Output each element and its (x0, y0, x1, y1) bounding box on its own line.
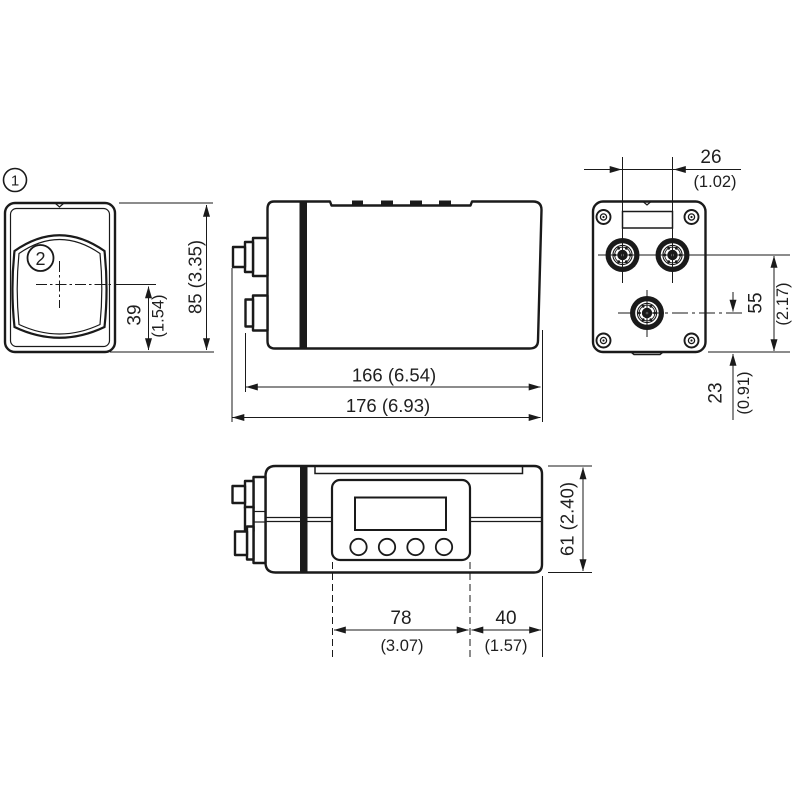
function-button (436, 539, 452, 555)
dimensional-drawing-page: 1 2 85 (3.35) 39 (1.54) (0, 0, 800, 800)
display-width-in-label: (3.07) (380, 637, 423, 655)
rear-view (593, 157, 790, 355)
m12-connector-side-lower-icon (246, 296, 268, 331)
side-view (233, 201, 542, 349)
lower-connector-height-mm-label: 23 (706, 382, 727, 403)
rear-section-in-label: (1.57) (484, 637, 527, 655)
depth-label: 61 (2.40) (557, 482, 578, 556)
front-bezel-band (300, 202, 308, 349)
dimension-display-width: 78 (3.07) 40 (1.57) (333, 562, 543, 657)
function-button (379, 539, 395, 555)
lower-connector-height-in-label: (0.91) (735, 371, 753, 414)
front-bezel-band (300, 466, 308, 573)
function-button (407, 539, 423, 555)
heatsink-rib (410, 201, 422, 207)
side-housing-outline (268, 202, 542, 349)
screw-icon (597, 334, 611, 348)
dimension-lens-offset: 39 (1.54) (122, 285, 168, 351)
dimensional-drawing: 1 2 85 (3.35) 39 (1.54) (0, 0, 800, 800)
heatsink-rib (352, 201, 363, 207)
m12-connector-top-icons (233, 477, 266, 563)
heatsink-rib (439, 201, 451, 207)
lcd-display (355, 498, 446, 531)
screw-icon (685, 334, 699, 348)
function-button (350, 539, 366, 555)
dimension-depth: 61 (2.40) (548, 466, 592, 573)
display-width-mm-label: 78 (390, 608, 411, 629)
screw-icon (597, 210, 611, 224)
body-length-label: 166 (6.54) (352, 365, 436, 386)
callout-1-label: 1 (11, 173, 19, 190)
lens-offset-in-label: (1.54) (150, 294, 168, 337)
m12-connector-side-upper-icon (233, 238, 268, 276)
rear-section-mm-label: 40 (495, 608, 516, 629)
top-view (233, 466, 543, 573)
dimension-connector-spacing: 26 (1.02) (584, 147, 741, 191)
heatsink-rib (381, 201, 393, 207)
screw-icon (685, 210, 699, 224)
connector-spacing-in-label: (1.02) (693, 173, 736, 191)
front-height-label: 85 (3.35) (185, 240, 206, 314)
callout-2-label: 2 (35, 249, 45, 269)
dimension-connector-height: 55 (2.17) (708, 256, 792, 352)
lens-offset-mm-label: 39 (125, 304, 146, 325)
connector-spacing-mm-label: 26 (700, 147, 721, 168)
connector-height-mm-label: 55 (746, 292, 767, 313)
total-length-label: 176 (6.93) (346, 395, 430, 416)
connector-height-in-label: (2.17) (774, 282, 792, 325)
